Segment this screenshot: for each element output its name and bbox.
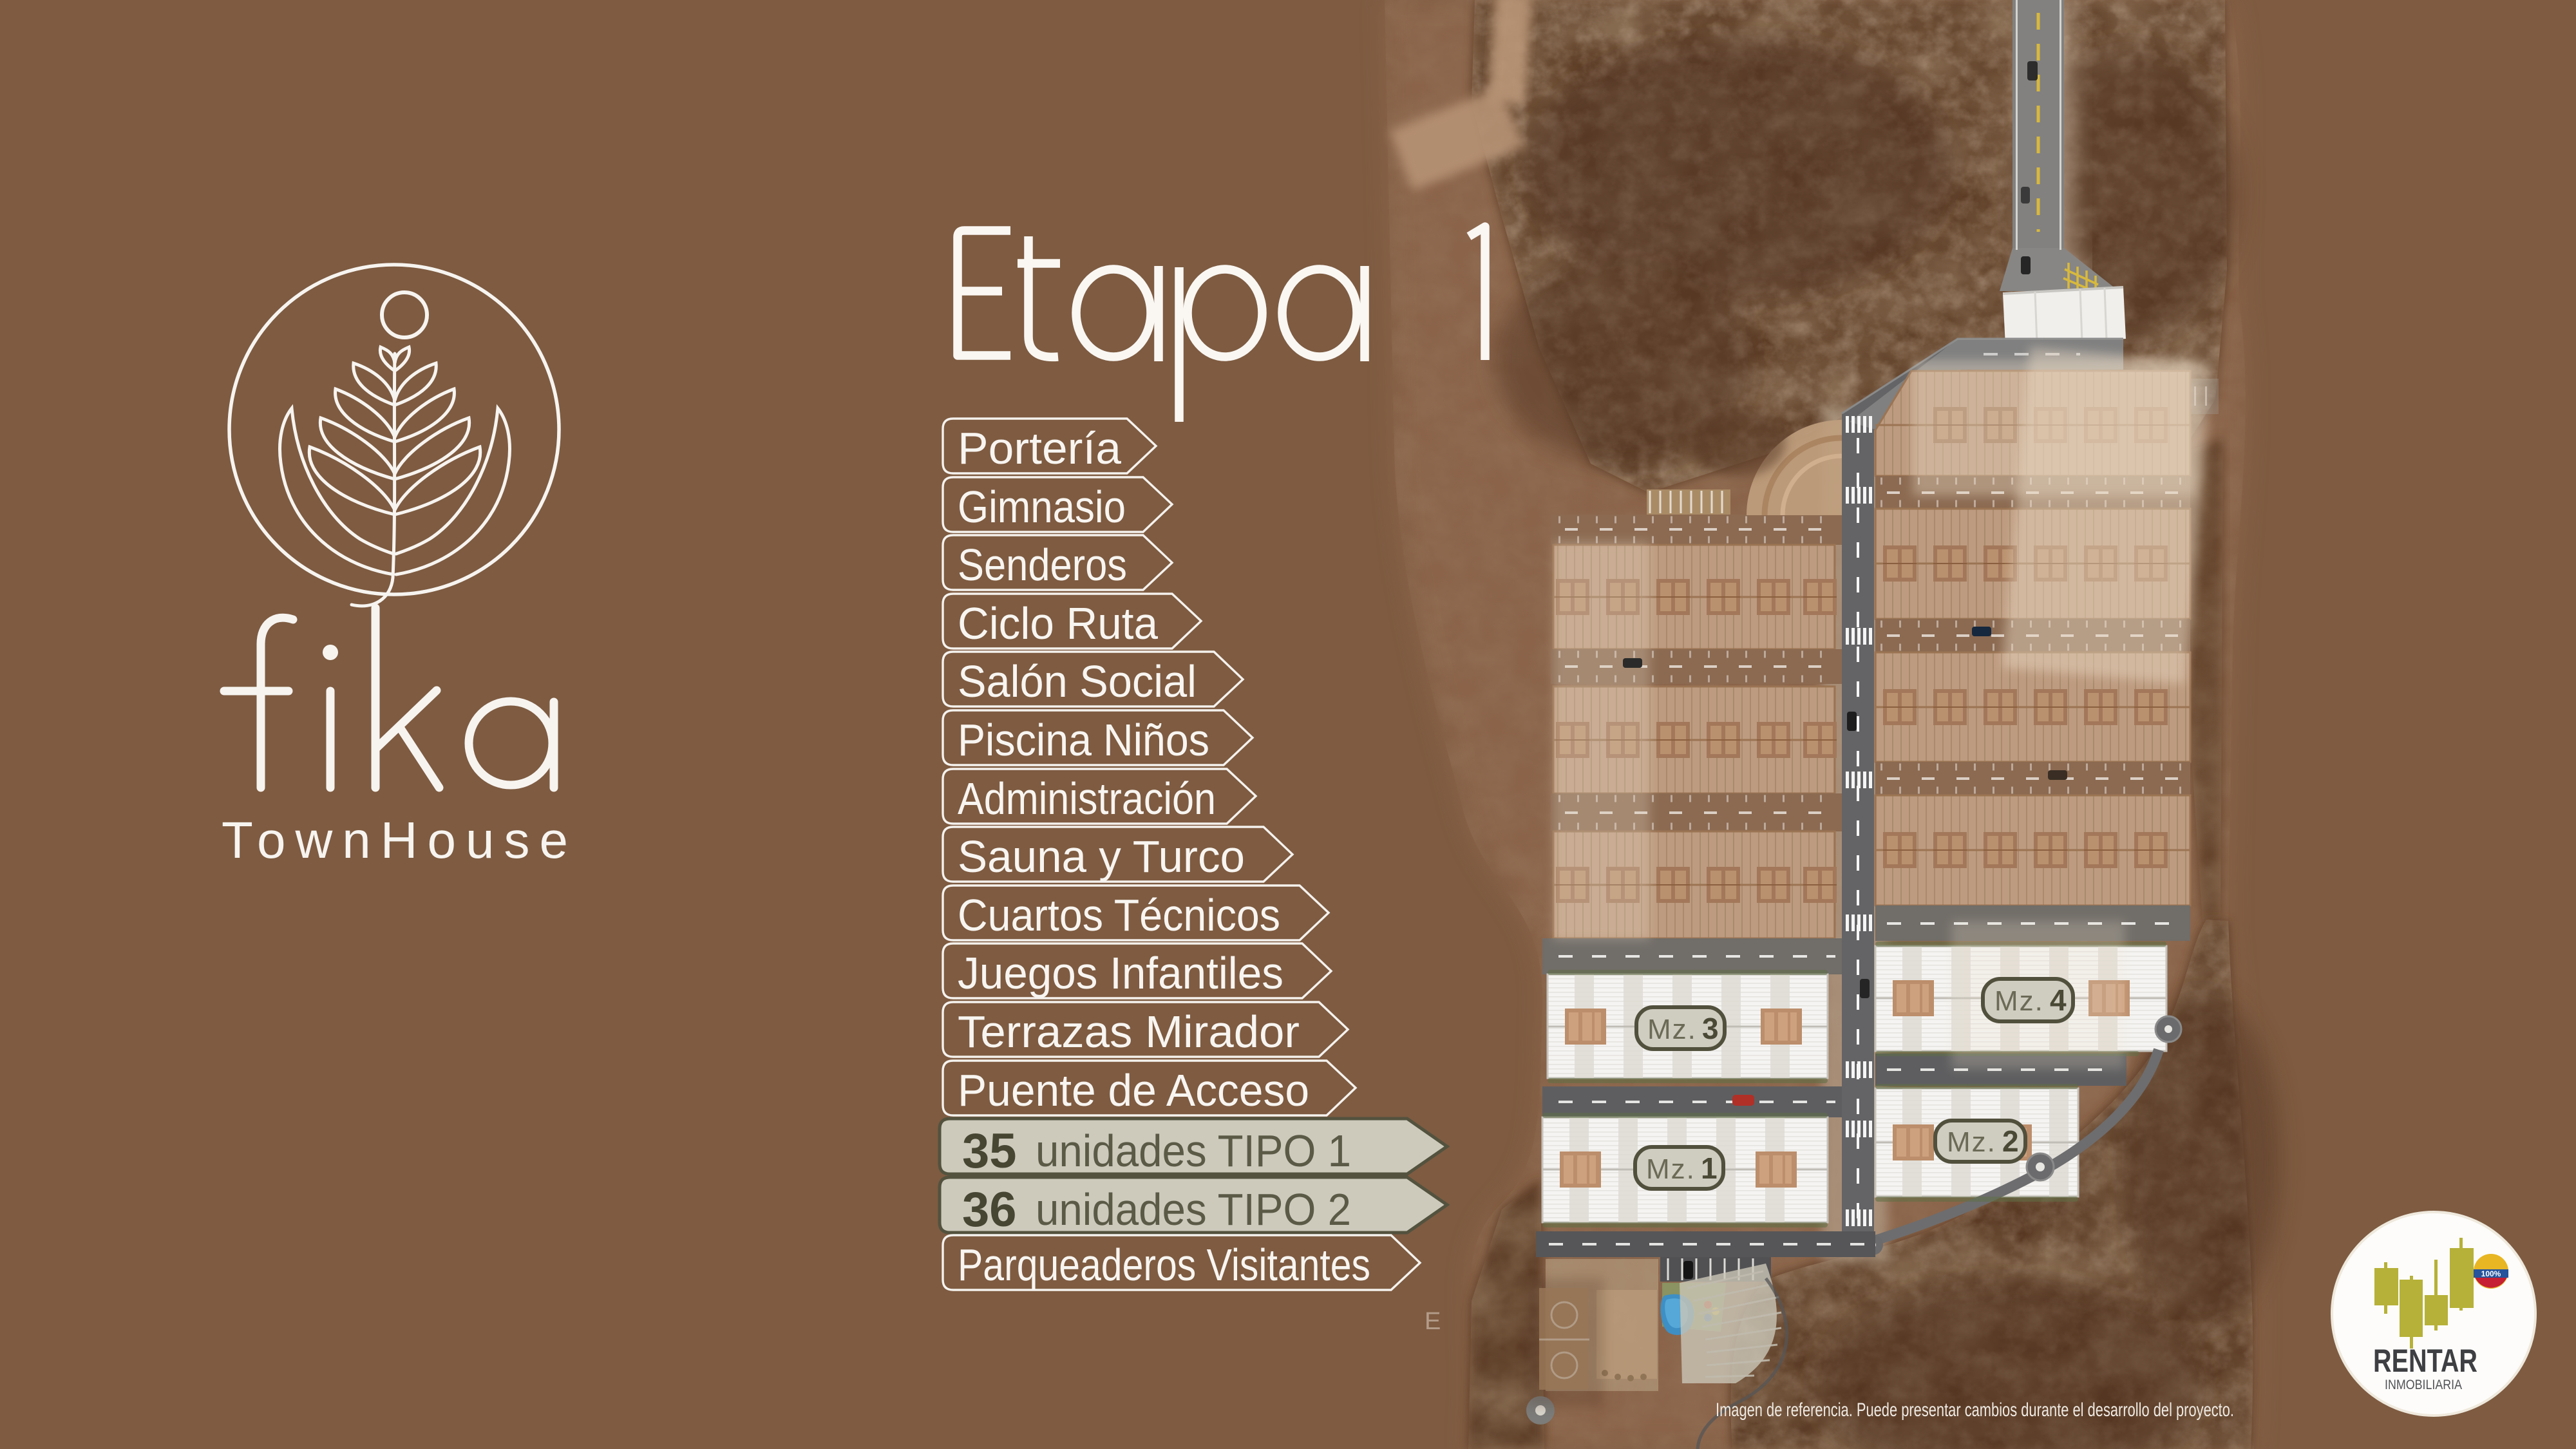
svg-text:Juegos Infantiles: Juegos Infantiles: [958, 948, 1283, 998]
svg-text:36: 36: [962, 1182, 1017, 1237]
svg-text:Cuartos Técnicos: Cuartos Técnicos: [958, 890, 1280, 940]
svg-text:Mz.: Mz.: [1646, 1153, 1696, 1185]
svg-text:Terrazas Mirador: Terrazas Mirador: [958, 1007, 1300, 1057]
svg-text:Piscina Niños: Piscina Niños: [958, 715, 1209, 765]
svg-text:Mz.: Mz.: [1994, 985, 2044, 1017]
svg-text:unidades TIPO 1: unidades TIPO 1: [1036, 1126, 1351, 1176]
svg-text:Sauna y Turco: Sauna y Turco: [958, 831, 1245, 882]
svg-text:Mz.: Mz.: [1947, 1126, 1996, 1158]
svg-text:RENTAR: RENTAR: [2373, 1343, 2477, 1379]
svg-text:Administración: Administración: [958, 773, 1216, 824]
svg-text:Ciclo Ruta: Ciclo Ruta: [958, 598, 1158, 649]
svg-text:Gimnasio: Gimnasio: [958, 482, 1126, 532]
svg-text:INMOBILIARIA: INMOBILIARIA: [2385, 1378, 2462, 1392]
svg-text:Parqueaderos Visitantes: Parqueaderos Visitantes: [958, 1240, 1370, 1290]
svg-text:TownHouse: TownHouse: [222, 811, 578, 869]
svg-text:4: 4: [2050, 983, 2067, 1017]
svg-text:2: 2: [2002, 1124, 2019, 1158]
svg-text:Puente de Acceso: Puente de Acceso: [958, 1065, 1309, 1115]
svg-text:Portería: Portería: [958, 423, 1121, 473]
svg-text:E: E: [1425, 1308, 1441, 1335]
svg-text:35: 35: [962, 1124, 1017, 1179]
svg-text:unidades TIPO 2: unidades TIPO 2: [1036, 1184, 1351, 1235]
svg-text:Salón Social: Salón Social: [958, 656, 1197, 706]
svg-text:1: 1: [1701, 1151, 1718, 1185]
svg-text:Imagen de referencia. Puede pr: Imagen de referencia. Puede presentar ca…: [1716, 1399, 2234, 1421]
svg-text:100%: 100%: [2481, 1269, 2501, 1278]
svg-text:Senderos: Senderos: [958, 540, 1127, 590]
svg-text:3: 3: [1702, 1012, 1719, 1045]
svg-text:Mz.: Mz.: [1647, 1014, 1697, 1045]
